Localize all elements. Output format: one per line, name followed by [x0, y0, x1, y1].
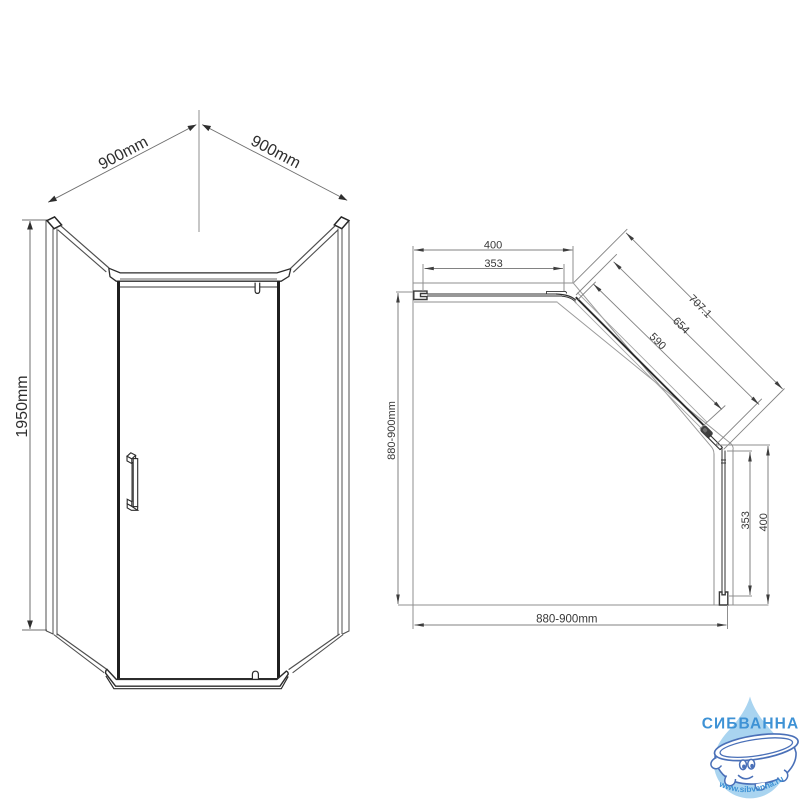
svg-text:СИБВАННА: СИБВАННА — [702, 715, 799, 732]
svg-text:400: 400 — [484, 239, 502, 251]
svg-text:1950mm: 1950mm — [14, 375, 31, 437]
svg-text:353: 353 — [740, 511, 752, 529]
svg-text:353: 353 — [484, 258, 502, 270]
svg-text:880-900mm: 880-900mm — [386, 401, 398, 460]
svg-text:400: 400 — [758, 513, 770, 531]
svg-text:880-900mm: 880-900mm — [536, 613, 597, 625]
